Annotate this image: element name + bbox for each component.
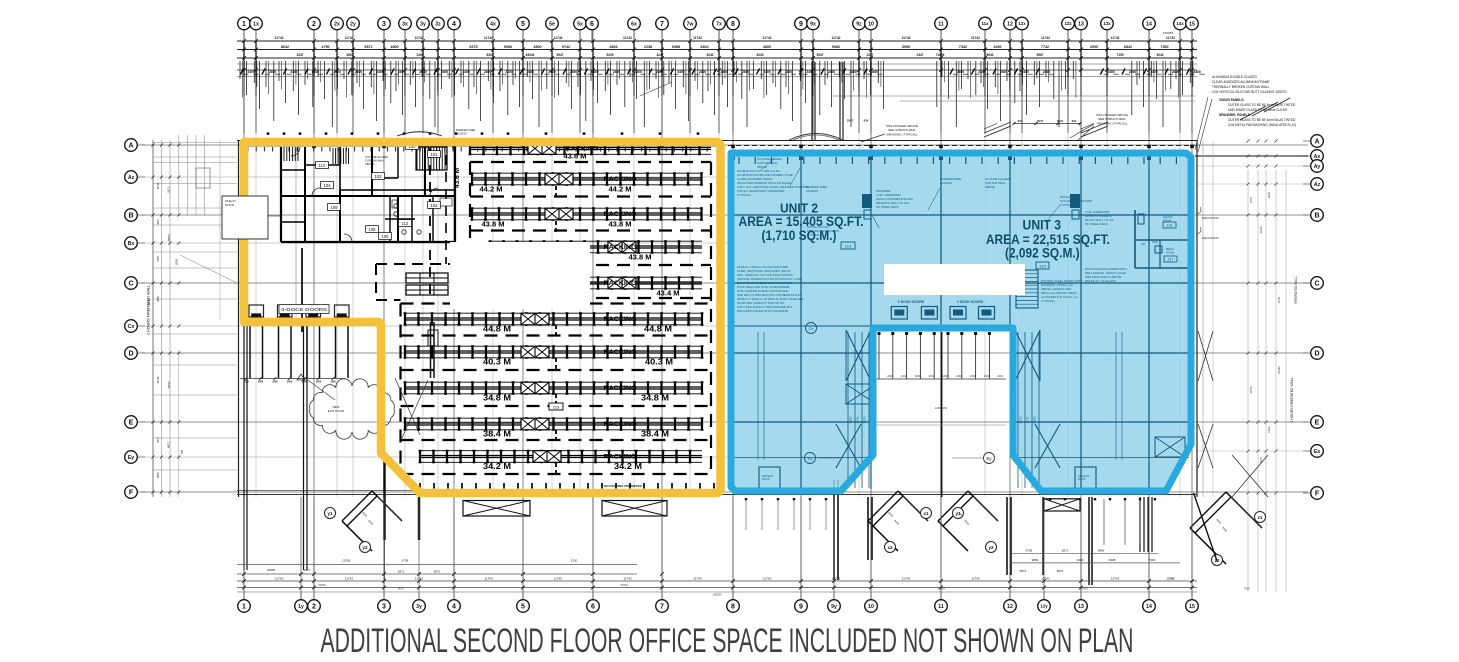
svg-text:5x: 5x bbox=[577, 21, 583, 27]
svg-text:2400: 2400 bbox=[720, 70, 728, 74]
svg-text:71656: 71656 bbox=[936, 53, 945, 57]
svg-text:2400: 2400 bbox=[1150, 70, 1158, 74]
svg-text:10060: 10060 bbox=[176, 258, 179, 266]
svg-text:4447: 4447 bbox=[157, 219, 160, 225]
svg-text:2x: 2x bbox=[334, 21, 340, 27]
svg-text:3247: 3247 bbox=[656, 53, 663, 57]
svg-text:11742: 11742 bbox=[763, 576, 772, 580]
svg-text:9z: 9z bbox=[856, 21, 862, 27]
svg-text:23503: 23503 bbox=[1034, 416, 1037, 423]
svg-text:3090: 3090 bbox=[902, 45, 910, 49]
svg-text:11742: 11742 bbox=[554, 36, 563, 40]
svg-text:2308: 2308 bbox=[1109, 558, 1116, 562]
svg-text:F: F bbox=[1315, 491, 1320, 498]
svg-text:2400: 2400 bbox=[287, 381, 293, 384]
svg-text:4790: 4790 bbox=[321, 45, 329, 49]
svg-text:6500: 6500 bbox=[1152, 241, 1158, 244]
svg-text:2400: 2400 bbox=[929, 375, 935, 378]
svg-text:109: 109 bbox=[331, 205, 339, 210]
svg-text:12: 12 bbox=[1007, 21, 1013, 27]
svg-text:11742: 11742 bbox=[623, 36, 632, 40]
svg-text:ALUMINUM DOUBLE-GLAZED: ALUMINUM DOUBLE-GLAZED bbox=[1212, 75, 1258, 79]
svg-text:ELECTL: ELECTL bbox=[1163, 215, 1173, 219]
svg-text:113: 113 bbox=[553, 404, 560, 409]
svg-text:165055: 165055 bbox=[713, 593, 722, 597]
svg-text:44.2 M: 44.2 M bbox=[609, 185, 632, 194]
svg-text:5871: 5871 bbox=[434, 570, 441, 574]
svg-text:9742: 9742 bbox=[562, 45, 570, 49]
svg-text:2400: 2400 bbox=[849, 70, 857, 74]
svg-text:5: 5 bbox=[521, 604, 525, 611]
svg-text:15: 15 bbox=[1189, 604, 1195, 610]
svg-text:2400: 2400 bbox=[887, 375, 893, 378]
svg-text:2400: 2400 bbox=[1043, 70, 1051, 74]
svg-text:11742: 11742 bbox=[902, 36, 911, 40]
svg-text:9x: 9x bbox=[810, 21, 816, 27]
svg-text:634: 634 bbox=[864, 119, 869, 123]
svg-text:2400: 2400 bbox=[505, 70, 513, 74]
svg-text:3x: 3x bbox=[402, 21, 408, 27]
svg-text:5967: 5967 bbox=[1036, 53, 1043, 57]
svg-text:2400: 2400 bbox=[258, 381, 264, 384]
svg-text:44.8 M: 44.8 M bbox=[644, 325, 672, 334]
svg-text:165055: 165055 bbox=[1163, 31, 1173, 35]
svg-text:VISION PANELS:: VISION PANELS: bbox=[1219, 98, 1244, 102]
svg-text:34.2 M: 34.2 M bbox=[483, 462, 511, 471]
svg-text:1725: 1725 bbox=[243, 381, 249, 384]
svg-text:5242: 5242 bbox=[1156, 53, 1163, 57]
svg-text:13x: 13x bbox=[1103, 21, 1111, 26]
svg-text:2400: 2400 bbox=[1129, 70, 1137, 74]
svg-text:11742: 11742 bbox=[554, 576, 563, 580]
svg-text:112: 112 bbox=[402, 221, 409, 226]
svg-text:4804: 4804 bbox=[700, 45, 709, 49]
svg-text:Ey: Ey bbox=[808, 456, 813, 461]
svg-text:5947: 5947 bbox=[816, 53, 823, 57]
svg-text:11: 11 bbox=[938, 21, 944, 27]
svg-text:9742: 9742 bbox=[1277, 296, 1281, 303]
svg-text:3600: 3600 bbox=[1077, 558, 1084, 562]
svg-text:7342: 7342 bbox=[959, 45, 967, 49]
svg-text:B: B bbox=[128, 213, 133, 220]
svg-text:8593: 8593 bbox=[1221, 526, 1228, 533]
svg-text:OF STEEL DECK: OF STEEL DECK bbox=[876, 205, 899, 209]
svg-text:14: 14 bbox=[1146, 21, 1152, 27]
svg-text:3130: 3130 bbox=[571, 559, 578, 563]
svg-text:102: 102 bbox=[431, 203, 439, 208]
svg-text:108: 108 bbox=[369, 227, 377, 232]
svg-text:E: E bbox=[1315, 420, 1320, 427]
svg-text:2000: 2000 bbox=[1090, 45, 1098, 49]
svg-text:5571: 5571 bbox=[157, 437, 160, 443]
svg-text:8593: 8593 bbox=[963, 519, 970, 526]
svg-text:2400: 2400 bbox=[484, 70, 492, 74]
svg-text:23070: 23070 bbox=[1020, 416, 1023, 423]
svg-text:1200 , 450: 1200 , 450 bbox=[935, 406, 948, 410]
svg-text:11742: 11742 bbox=[1249, 386, 1253, 394]
svg-text:Ex: Ex bbox=[1314, 449, 1320, 455]
svg-text:11742: 11742 bbox=[1259, 226, 1263, 234]
svg-text:5571: 5571 bbox=[168, 187, 171, 193]
svg-text:7: 7 bbox=[660, 21, 664, 28]
svg-text:THERMALLY BROKEN CURTAIN WALL: THERMALLY BROKEN CURTAIN WALL bbox=[1212, 85, 1270, 89]
svg-text:2400: 2400 bbox=[269, 70, 277, 74]
svg-text:2400: 2400 bbox=[763, 70, 771, 74]
svg-text:2400: 2400 bbox=[301, 381, 307, 384]
svg-text:z1: z1 bbox=[1258, 515, 1263, 520]
svg-text:2 HOURS FIRERATED WALL: 2 HOURS FIRERATED WALL bbox=[147, 285, 151, 335]
svg-text:8942: 8942 bbox=[986, 53, 993, 57]
svg-text:SPANDREL PANELS:: SPANDREL PANELS: bbox=[1219, 113, 1251, 117]
svg-text:11742: 11742 bbox=[157, 182, 160, 189]
svg-text:2400: 2400 bbox=[1000, 70, 1008, 74]
svg-text:9: 9 bbox=[799, 604, 803, 611]
svg-text:C/W METAL PAN BACKING (INSULAT: C/W METAL PAN BACKING (INSULATED R-12) bbox=[1228, 123, 1296, 127]
svg-text:ABOVE: ABOVE bbox=[365, 162, 374, 166]
svg-text:RACKING: RACKING bbox=[604, 454, 637, 461]
svg-text:F: F bbox=[129, 490, 134, 497]
svg-text:2400: 2400 bbox=[785, 70, 793, 74]
svg-text:2347: 2347 bbox=[296, 53, 303, 57]
svg-text:4400: 4400 bbox=[993, 45, 1001, 49]
svg-text:RACKING: RACKING bbox=[604, 280, 637, 287]
svg-text:2400: 2400 bbox=[398, 70, 406, 74]
svg-text:DRAWING (TYPICAL): DRAWING (TYPICAL) bbox=[887, 132, 918, 136]
svg-text:2400: 2400 bbox=[1193, 70, 1201, 74]
svg-text:7360: 7360 bbox=[1160, 45, 1168, 49]
svg-text:11742: 11742 bbox=[693, 36, 702, 40]
svg-text:3347: 3347 bbox=[1057, 119, 1064, 123]
svg-text:5242: 5242 bbox=[706, 53, 713, 57]
svg-text:11742: 11742 bbox=[1111, 576, 1120, 580]
svg-text:2400: 2400 bbox=[316, 381, 322, 384]
svg-text:12z: 12z bbox=[1064, 21, 1072, 26]
svg-text:9082: 9082 bbox=[832, 45, 840, 49]
svg-text:Cx: Cx bbox=[128, 324, 135, 330]
svg-text:1y: 1y bbox=[298, 604, 304, 610]
svg-text:5: 5 bbox=[521, 21, 525, 28]
svg-text:MAN DOOR: MAN DOOR bbox=[1202, 236, 1219, 240]
svg-text:7x: 7x bbox=[716, 21, 722, 27]
svg-text:11742: 11742 bbox=[971, 576, 980, 580]
svg-text:12y: 12y bbox=[1040, 604, 1048, 609]
svg-text:6866: 6866 bbox=[1267, 191, 1271, 198]
svg-text:2 DOCK DOORS: 2 DOCK DOORS bbox=[898, 300, 925, 304]
svg-text:A: A bbox=[128, 143, 133, 150]
svg-text:2247: 2247 bbox=[866, 53, 873, 57]
svg-text:8593: 8593 bbox=[893, 519, 900, 526]
svg-text:11742: 11742 bbox=[345, 36, 354, 40]
svg-text:11742: 11742 bbox=[902, 576, 911, 580]
svg-text:4804: 4804 bbox=[609, 45, 618, 49]
svg-text:OUTER GLASS TO BE 6E 4mm BLUE: OUTER GLASS TO BE 6E 4mm BLUE TINTED bbox=[1228, 118, 1296, 122]
svg-text:ADDITIONAL SECOND FLOOR OFFICE: ADDITIONAL SECOND FLOOR OFFICE SPACE INC… bbox=[321, 622, 1134, 660]
svg-text:RACKING: RACKING bbox=[604, 176, 637, 183]
svg-text:11742: 11742 bbox=[1027, 416, 1030, 423]
svg-text:6671: 6671 bbox=[168, 442, 171, 448]
svg-text:8593: 8593 bbox=[1215, 518, 1222, 525]
svg-text:11742: 11742 bbox=[1041, 36, 1050, 40]
svg-text:17853: 17853 bbox=[1080, 587, 1088, 591]
svg-text:9: 9 bbox=[799, 21, 803, 28]
svg-text:C: C bbox=[1314, 281, 1319, 288]
svg-text:ROOM: ROOM bbox=[1166, 250, 1174, 254]
svg-text:2400: 2400 bbox=[570, 70, 578, 74]
svg-text:REFER TO 1 & 2/A-400: REFER TO 1 & 2/A-400 bbox=[1085, 279, 1116, 283]
svg-text:8593: 8593 bbox=[367, 519, 374, 526]
svg-text:4: 4 bbox=[452, 604, 456, 611]
svg-text:14: 14 bbox=[1146, 604, 1152, 610]
svg-text:11742: 11742 bbox=[832, 36, 841, 40]
svg-text:1x: 1x bbox=[253, 21, 259, 27]
svg-text:2400: 2400 bbox=[634, 70, 642, 74]
svg-text:6070: 6070 bbox=[398, 587, 404, 591]
svg-text:7359: 7359 bbox=[1244, 587, 1250, 591]
svg-text:AND INNER GLASS TO BE 6mm CLEA: AND INNER GLASS TO BE 6mm CLEAR bbox=[1228, 108, 1288, 112]
svg-text:y1: y1 bbox=[327, 511, 333, 516]
svg-text:7156: 7156 bbox=[1168, 576, 1174, 580]
svg-text:2400: 2400 bbox=[355, 70, 363, 74]
svg-text:240: 240 bbox=[1141, 243, 1146, 246]
svg-text:11742: 11742 bbox=[1166, 36, 1175, 40]
svg-text:23070: 23070 bbox=[864, 416, 867, 423]
svg-text:2400: 2400 bbox=[247, 70, 255, 74]
svg-text:6988: 6988 bbox=[672, 45, 680, 49]
svg-text:11742: 11742 bbox=[157, 376, 160, 383]
svg-text:4: 4 bbox=[452, 21, 456, 28]
svg-text:DOOR: DOOR bbox=[225, 203, 235, 207]
svg-text:2400: 2400 bbox=[970, 375, 976, 378]
svg-text:9871: 9871 bbox=[364, 45, 372, 49]
svg-text:3772: 3772 bbox=[1249, 196, 1253, 203]
svg-text:DOOR: DOOR bbox=[1078, 478, 1086, 481]
svg-text:7000: 7000 bbox=[1149, 558, 1156, 562]
svg-text:634: 634 bbox=[1072, 119, 1077, 123]
svg-text:11742: 11742 bbox=[1111, 36, 1120, 40]
svg-text:23454: 23454 bbox=[318, 583, 326, 587]
svg-text:y2: y2 bbox=[362, 545, 368, 550]
svg-text:101: 101 bbox=[431, 152, 439, 157]
svg-text:11742: 11742 bbox=[857, 416, 860, 423]
svg-text:ACCESS: ACCESS bbox=[456, 132, 467, 136]
svg-text:BOLLARDS FILLED WITH CONCRETE: BOLLARDS FILLED WITH CONCRETE bbox=[737, 309, 788, 313]
svg-text:7w: 7w bbox=[687, 21, 695, 27]
svg-text:3y: 3y bbox=[420, 21, 426, 27]
svg-text:634: 634 bbox=[1018, 119, 1023, 123]
svg-text:RACKING: RACKING bbox=[604, 421, 637, 428]
svg-text:8: 8 bbox=[731, 21, 735, 28]
svg-text:7364: 7364 bbox=[1267, 426, 1271, 433]
svg-text:2400: 2400 bbox=[272, 381, 278, 384]
svg-text:ACCESS: ACCESS bbox=[806, 189, 818, 193]
svg-text:3347: 3347 bbox=[847, 119, 854, 123]
svg-text:12x: 12x bbox=[1018, 21, 1026, 26]
svg-text:RACKING: RACKING bbox=[604, 211, 637, 218]
svg-text:3: 3 bbox=[382, 604, 386, 611]
svg-text:2400: 2400 bbox=[527, 70, 535, 74]
svg-text:AREA = 15,405 SQ.FT.: AREA = 15,405 SQ.FT. bbox=[739, 214, 864, 229]
svg-text:2400: 2400 bbox=[677, 70, 685, 74]
svg-text:2400: 2400 bbox=[462, 70, 470, 74]
svg-text:FIRERATED WALL: FIRERATED WALL bbox=[1294, 276, 1298, 304]
svg-text:11742: 11742 bbox=[832, 576, 841, 580]
svg-text:2400: 2400 bbox=[915, 375, 921, 378]
svg-text:114: 114 bbox=[845, 243, 852, 248]
svg-text:11300: 11300 bbox=[342, 559, 350, 563]
svg-text:EXIT DOOR: EXIT DOOR bbox=[328, 409, 345, 413]
svg-text:11742: 11742 bbox=[623, 576, 632, 580]
svg-text:OUTER GLASS TO BE 6E 4mm BLUE: OUTER GLASS TO BE 6E 4mm BLUE TINTED bbox=[1228, 103, 1296, 107]
svg-text:103: 103 bbox=[375, 174, 383, 179]
svg-text:D: D bbox=[128, 351, 133, 358]
svg-text:9086: 9086 bbox=[504, 45, 512, 49]
svg-text:11742: 11742 bbox=[693, 576, 702, 580]
svg-text:2400: 2400 bbox=[312, 70, 320, 74]
svg-text:2 DOCK DOORS: 2 DOCK DOORS bbox=[957, 300, 984, 304]
svg-text:117: 117 bbox=[1168, 258, 1174, 262]
svg-text:63044: 63044 bbox=[526, 53, 535, 57]
svg-text:1: 1 bbox=[242, 21, 246, 28]
svg-text:5728: 5728 bbox=[1026, 549, 1033, 553]
svg-text:7742: 7742 bbox=[1041, 45, 1049, 49]
svg-text:4800: 4800 bbox=[533, 45, 541, 49]
svg-text:2400: 2400 bbox=[742, 70, 750, 74]
svg-text:x2: x2 bbox=[887, 545, 893, 550]
svg-text:E: E bbox=[129, 420, 134, 427]
svg-text:5871: 5871 bbox=[1062, 549, 1069, 553]
svg-text:11742: 11742 bbox=[971, 36, 980, 40]
svg-text:6: 6 bbox=[590, 21, 594, 28]
svg-text:3347: 3347 bbox=[1037, 119, 1044, 123]
svg-text:2400: 2400 bbox=[828, 70, 836, 74]
svg-text:40.3 M: 40.3 M bbox=[645, 358, 673, 367]
svg-text:5239: 5239 bbox=[606, 53, 613, 57]
svg-text:15: 15 bbox=[1189, 21, 1195, 27]
svg-text:(2,092 SQ.M.): (2,092 SQ.M.) bbox=[1005, 244, 1080, 260]
svg-text:(1,710 SQ.M.): (1,710 SQ.M.) bbox=[762, 228, 837, 243]
svg-text:2400: 2400 bbox=[984, 375, 990, 378]
svg-text:MAN DOOR: MAN DOOR bbox=[1202, 216, 1219, 220]
svg-text:11742: 11742 bbox=[415, 36, 424, 40]
svg-text:3y: 3y bbox=[416, 604, 422, 610]
svg-text:5871: 5871 bbox=[1057, 569, 1064, 573]
svg-text:2400: 2400 bbox=[901, 375, 907, 378]
svg-text:1: 1 bbox=[242, 604, 246, 611]
svg-text:116: 116 bbox=[1167, 224, 1173, 228]
svg-text:Cx: Cx bbox=[809, 326, 814, 331]
svg-text:Az: Az bbox=[128, 175, 135, 181]
svg-text:43.8 M: 43.8 M bbox=[629, 253, 652, 262]
svg-text:11742: 11742 bbox=[415, 576, 424, 580]
svg-text:70742: 70742 bbox=[620, 583, 628, 587]
svg-text:115: 115 bbox=[1039, 263, 1046, 268]
svg-text:2400: 2400 bbox=[956, 375, 962, 378]
svg-text:34.2 M: 34.2 M bbox=[614, 462, 642, 471]
svg-text:4650: 4650 bbox=[157, 296, 160, 302]
svg-text:8: 8 bbox=[731, 604, 735, 611]
svg-text:6738: 6738 bbox=[402, 559, 409, 563]
svg-text:6842: 6842 bbox=[1124, 45, 1132, 49]
svg-text:y2: y2 bbox=[988, 545, 994, 550]
svg-text:8642: 8642 bbox=[281, 45, 289, 49]
svg-text:C: C bbox=[128, 281, 133, 288]
svg-text:9882: 9882 bbox=[1032, 558, 1039, 562]
svg-text:Ay: Ay bbox=[1314, 164, 1321, 170]
svg-text:10: 10 bbox=[868, 21, 874, 27]
svg-text:9230: 9230 bbox=[756, 53, 763, 57]
svg-text:40.3 M: 40.3 M bbox=[483, 358, 511, 367]
svg-text:145: 145 bbox=[181, 449, 184, 454]
svg-text:A: A bbox=[1314, 139, 1319, 146]
svg-text:13: 13 bbox=[1078, 21, 1084, 27]
svg-text:2 HOURS FIRERATED WALL: 2 HOURS FIRERATED WALL bbox=[1290, 377, 1294, 422]
svg-text:2400: 2400 bbox=[330, 381, 336, 384]
svg-text:BARRIER FREE: BARRIER FREE bbox=[456, 128, 475, 132]
svg-text:43.8 M: 43.8 M bbox=[609, 220, 632, 229]
svg-text:22199: 22199 bbox=[937, 587, 945, 591]
svg-text:(TYPICAL): (TYPICAL) bbox=[737, 193, 751, 197]
svg-text:23503: 23503 bbox=[850, 416, 853, 423]
svg-text:NO RACKING PERIMETER: NO RACKING PERIMETER bbox=[604, 484, 643, 488]
svg-text:2238: 2238 bbox=[644, 45, 652, 49]
svg-text:CLEAR ANODIZED ALUMINUM FRAME: CLEAR ANODIZED ALUMINUM FRAME bbox=[1212, 80, 1270, 84]
svg-text:4800: 4800 bbox=[390, 45, 398, 49]
svg-text:11742: 11742 bbox=[484, 576, 493, 580]
svg-text:23010: 23010 bbox=[168, 381, 171, 389]
svg-text:34.8 M: 34.8 M bbox=[641, 394, 669, 403]
svg-text:8593: 8593 bbox=[887, 511, 894, 518]
svg-text:5871: 5871 bbox=[1020, 569, 1027, 573]
svg-text:5947: 5947 bbox=[556, 53, 563, 57]
svg-text:2400: 2400 bbox=[1107, 70, 1115, 74]
svg-text:34.8 M: 34.8 M bbox=[483, 394, 511, 403]
svg-text:11742: 11742 bbox=[484, 36, 493, 40]
svg-text:6x: 6x bbox=[631, 21, 637, 27]
svg-text:11742: 11742 bbox=[763, 36, 772, 40]
svg-text:2347: 2347 bbox=[916, 53, 923, 57]
svg-text:38.4 M: 38.4 M bbox=[641, 430, 669, 439]
svg-text:38.4 M: 38.4 M bbox=[483, 430, 511, 439]
svg-text:30559: 30559 bbox=[168, 234, 171, 242]
svg-text:11x: 11x bbox=[981, 21, 989, 26]
svg-text:OUTLINE GLAZED: OUTLINE GLAZED bbox=[365, 155, 388, 159]
svg-text:2400: 2400 bbox=[441, 70, 449, 74]
svg-text:2400: 2400 bbox=[957, 70, 965, 74]
svg-text:4800: 4800 bbox=[763, 45, 771, 49]
svg-text:ABOVE: ABOVE bbox=[985, 185, 995, 189]
svg-text:11742: 11742 bbox=[1041, 576, 1050, 580]
svg-text:2400: 2400 bbox=[998, 375, 1004, 378]
svg-text:5871: 5871 bbox=[398, 570, 405, 574]
svg-text:7: 7 bbox=[660, 604, 664, 611]
svg-text:2: 2 bbox=[312, 604, 316, 611]
svg-text:DOOR: DOOR bbox=[762, 478, 770, 481]
svg-text:8676: 8676 bbox=[157, 472, 160, 478]
svg-text:Az: Az bbox=[1314, 182, 1321, 188]
svg-text:2y: 2y bbox=[350, 21, 356, 27]
svg-text:2: 2 bbox=[312, 21, 316, 28]
svg-text:10: 10 bbox=[868, 604, 874, 610]
svg-text:Ax: Ax bbox=[1314, 154, 1321, 160]
svg-text:2477: 2477 bbox=[304, 568, 311, 572]
svg-text:Ey: Ey bbox=[128, 455, 134, 461]
svg-text:RACKING: RACKING bbox=[604, 349, 637, 356]
svg-text:11742: 11742 bbox=[345, 576, 354, 580]
svg-text:44.8 M: 44.8 M bbox=[483, 325, 511, 334]
svg-text:RACKING: RACKING bbox=[604, 316, 637, 323]
svg-text:4x: 4x bbox=[490, 21, 496, 27]
svg-text:43.4 M: 43.4 M bbox=[657, 289, 680, 298]
